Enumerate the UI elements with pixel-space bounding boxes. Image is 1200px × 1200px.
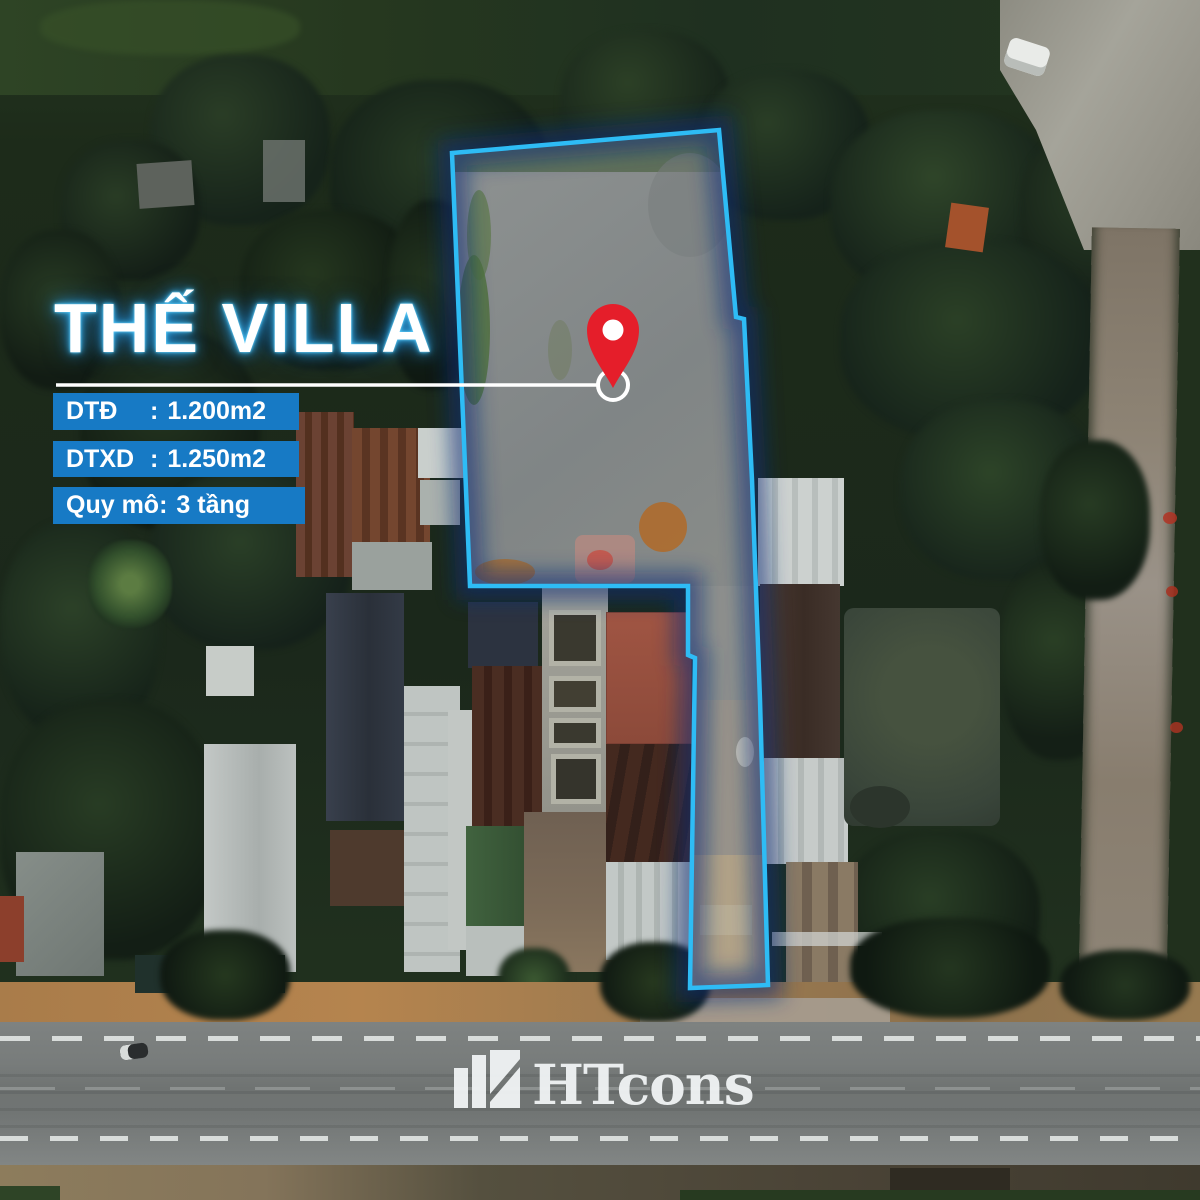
project-title: THẾ VILLA [54,288,574,368]
spec-separator: : [150,397,158,426]
spec-label: DTĐ [66,397,150,426]
spec-label: Quy mô [66,491,159,520]
plot-overlay [0,0,1200,1200]
real-estate-aerial-poster: THẾ VILLA DTĐ:1.200m2 DTXD:1.250m2 Quy m… [0,0,1200,1200]
spec-badge-dtxd: DTXD:1.250m2 [53,441,299,477]
spec-badges: DTĐ:1.200m2 DTXD:1.250m2 Quy mô:3 tầng [53,393,305,524]
spec-badge-dtd: DTĐ:1.200m2 [53,393,299,430]
spec-value: 3 tầng [176,491,250,520]
brand-name: HTcons [532,1056,754,1114]
spec-value: 1.200m2 [167,397,266,426]
spec-separator: : [150,445,158,474]
spec-value: 1.250m2 [167,445,266,474]
spec-separator: : [159,491,167,520]
spec-badge-quymo: Quy mô:3 tầng [53,487,305,524]
bar-chart-logo-icon [452,1050,524,1110]
spec-label: DTXD [66,445,150,474]
map-pin-hole [603,320,624,341]
brand-logo: HTcons [452,1050,754,1114]
